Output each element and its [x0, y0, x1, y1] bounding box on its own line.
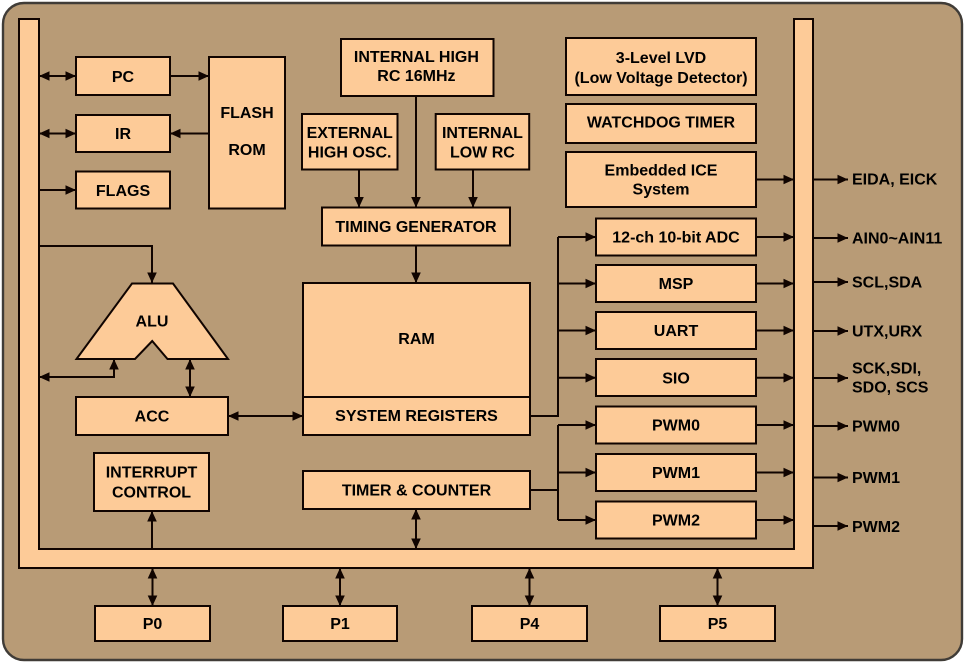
- svg-text:(Low Voltage Detector): (Low Voltage Detector): [574, 70, 747, 87]
- svg-text:IR: IR: [115, 126, 131, 143]
- svg-text:12-ch 10-bit ADC: 12-ch 10-bit ADC: [612, 230, 740, 247]
- svg-text:LOW RC: LOW RC: [450, 145, 515, 162]
- svg-text:HIGH OSC.: HIGH OSC.: [308, 145, 392, 162]
- svg-text:UART: UART: [654, 323, 699, 340]
- svg-text:ACC: ACC: [135, 409, 170, 426]
- svg-text:EIDA, EICK: EIDA, EICK: [852, 172, 938, 189]
- svg-text:RC 16MHz: RC 16MHz: [377, 68, 455, 85]
- svg-text:PWM2: PWM2: [652, 513, 700, 530]
- svg-text:PWM1: PWM1: [852, 470, 900, 487]
- svg-text:INTERNAL: INTERNAL: [442, 125, 523, 142]
- svg-text:SDO, SCS: SDO, SCS: [852, 380, 929, 397]
- svg-text:P4: P4: [520, 616, 540, 633]
- svg-text:SYSTEM REGISTERS: SYSTEM REGISTERS: [335, 408, 498, 425]
- svg-text:WATCHDOG TIMER: WATCHDOG TIMER: [587, 115, 736, 132]
- svg-text:ALU: ALU: [136, 314, 169, 331]
- svg-text:PWM0: PWM0: [652, 418, 700, 435]
- svg-text:Embedded ICE: Embedded ICE: [605, 163, 718, 180]
- svg-text:PWM1: PWM1: [652, 465, 700, 482]
- svg-text:SCK,SDI,: SCK,SDI,: [852, 361, 921, 378]
- svg-text:TIMER & COUNTER: TIMER & COUNTER: [342, 483, 492, 500]
- svg-text:INTERRUPT: INTERRUPT: [106, 465, 198, 482]
- svg-text:PWM0: PWM0: [852, 419, 900, 436]
- svg-text:SIO: SIO: [662, 370, 690, 387]
- svg-text:P1: P1: [330, 616, 350, 633]
- svg-text:ROM: ROM: [228, 142, 265, 159]
- svg-text:3-Level LVD: 3-Level LVD: [616, 50, 706, 67]
- svg-text:PC: PC: [112, 69, 135, 86]
- svg-text:PWM2: PWM2: [852, 519, 900, 536]
- svg-text:P5: P5: [708, 616, 728, 633]
- svg-text:MSP: MSP: [659, 276, 694, 293]
- svg-text:UTX,URX: UTX,URX: [852, 324, 923, 341]
- svg-text:CONTROL: CONTROL: [112, 485, 191, 502]
- svg-text:TIMING GENERATOR: TIMING GENERATOR: [335, 219, 497, 236]
- svg-text:FLASH: FLASH: [220, 105, 273, 122]
- svg-text:AIN0~AIN11: AIN0~AIN11: [852, 231, 942, 248]
- svg-text:FLAGS: FLAGS: [96, 183, 151, 200]
- svg-text:System: System: [633, 182, 690, 199]
- svg-text:INTERNAL HIGH: INTERNAL HIGH: [354, 49, 479, 66]
- svg-text:SCL,SDA: SCL,SDA: [852, 275, 923, 292]
- svg-text:RAM: RAM: [398, 331, 434, 348]
- svg-text:EXTERNAL: EXTERNAL: [307, 125, 393, 142]
- svg-text:P0: P0: [143, 616, 163, 633]
